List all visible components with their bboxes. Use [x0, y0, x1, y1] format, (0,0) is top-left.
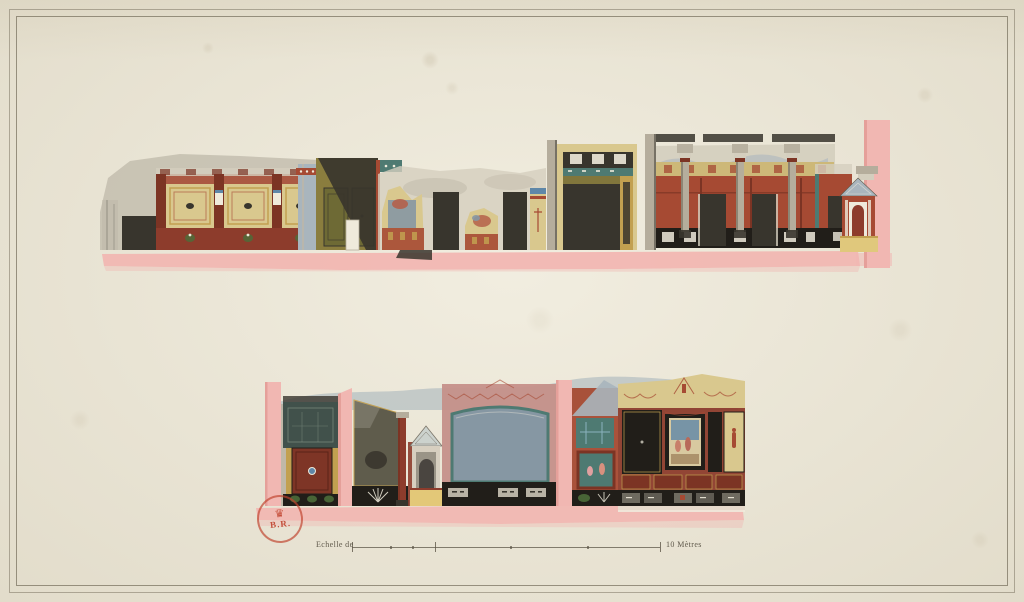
center-picture-panel — [665, 412, 705, 470]
stamp-letters: B.R. — [270, 518, 292, 530]
pier-third — [556, 380, 572, 506]
doorway-colonnade-2 — [752, 194, 776, 246]
niche-aedicula — [408, 426, 442, 506]
lower-section-drawing — [250, 368, 750, 536]
doorway-mid-2 — [503, 192, 527, 250]
frieze-figure — [682, 384, 686, 393]
doorway-left — [122, 216, 156, 250]
scale-tick-start — [352, 542, 353, 552]
scale-end-label: 10 Mètres — [666, 540, 702, 549]
scale-tick-end — [660, 542, 661, 552]
right-wall — [618, 374, 745, 512]
red-door-panel — [292, 448, 332, 494]
gable-room — [572, 380, 618, 506]
doorway-colonnade-1 — [700, 194, 726, 246]
left-panel-wall — [100, 154, 322, 250]
grand-panel-wall — [442, 380, 556, 506]
black-panel-2 — [708, 412, 722, 472]
black-panel-1 — [622, 410, 662, 474]
roofline — [645, 134, 835, 142]
framed-picture — [578, 452, 614, 488]
baseboard — [618, 506, 745, 512]
yellow-figure-panel — [724, 412, 744, 472]
ruined-wall-fragments — [378, 166, 546, 260]
doorway-mid-1 — [433, 192, 459, 250]
scale-dot — [390, 546, 392, 549]
garden-panel — [452, 407, 548, 482]
tall-room — [547, 140, 637, 250]
pier-second — [338, 388, 352, 506]
altar-block — [346, 220, 359, 250]
plate-paper: ♛ B.R. Echelle de 10 Mètres — [0, 0, 1024, 602]
scale-line — [352, 547, 660, 548]
scale-dot — [587, 546, 589, 549]
blue-pilaster — [296, 164, 318, 250]
left-room-pilaster — [286, 448, 292, 496]
left-room — [281, 396, 338, 506]
upper-ground-band — [102, 251, 892, 272]
scale-tick-mid — [435, 542, 436, 552]
scale-dot — [412, 546, 414, 549]
mid-red-panels — [622, 475, 742, 489]
pilaster-fragment — [530, 188, 546, 250]
fragment-2 — [465, 208, 498, 250]
scale-bar: Echelle de 10 Mètres — [316, 538, 716, 554]
colonnade-wall — [645, 134, 835, 250]
pier-left — [265, 382, 281, 506]
upper-section-drawing — [100, 116, 892, 274]
scale-label: Echelle de — [316, 540, 354, 549]
right-end — [815, 120, 890, 268]
yellow-framed-panels — [166, 184, 320, 228]
scale-dot — [510, 546, 512, 549]
right-predella — [618, 490, 745, 506]
